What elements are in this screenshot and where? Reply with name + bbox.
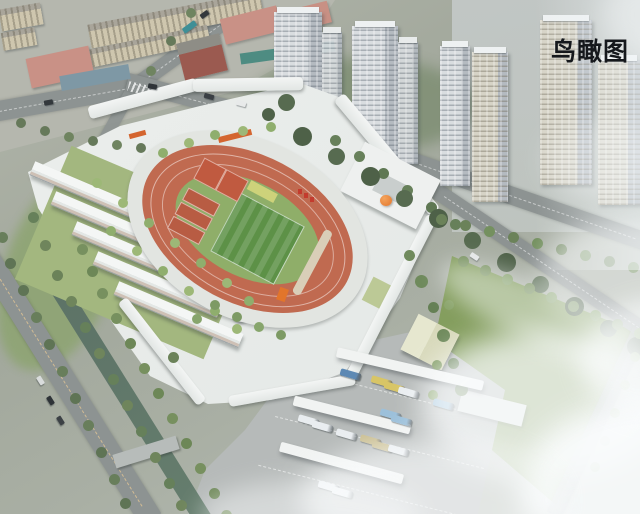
north-wing-building [193, 77, 303, 92]
tree-row-between-roads [436, 214, 447, 225]
orange-dome [380, 195, 392, 206]
tree-row-road-west [5, 258, 16, 269]
car [36, 375, 45, 385]
red-flag [298, 189, 302, 194]
tree-cluster-track-south [210, 300, 220, 310]
red-flag [310, 197, 314, 202]
tree-row-road-east [52, 270, 63, 281]
apartment-tower [440, 46, 470, 186]
tree-row-field-west [444, 300, 454, 310]
tree-row-campus-south [168, 352, 179, 363]
tree-row-northeast-road [330, 135, 341, 146]
car [469, 252, 479, 261]
red-flag [304, 193, 308, 198]
aerial-rendering: 鸟瞰图 [0, 0, 640, 514]
view-caption: 鸟瞰图 [551, 32, 629, 68]
apartment-tower [472, 52, 508, 202]
tree-row-topleft-roads [16, 118, 26, 128]
tree-cluster-campus-inner [92, 178, 102, 188]
car [56, 415, 65, 425]
tree-row-se-slope [404, 250, 415, 261]
tree-row-canal-east [97, 288, 108, 299]
apartment-tower-wing [398, 42, 418, 164]
tree-band-towers [262, 108, 275, 121]
car [46, 395, 55, 405]
